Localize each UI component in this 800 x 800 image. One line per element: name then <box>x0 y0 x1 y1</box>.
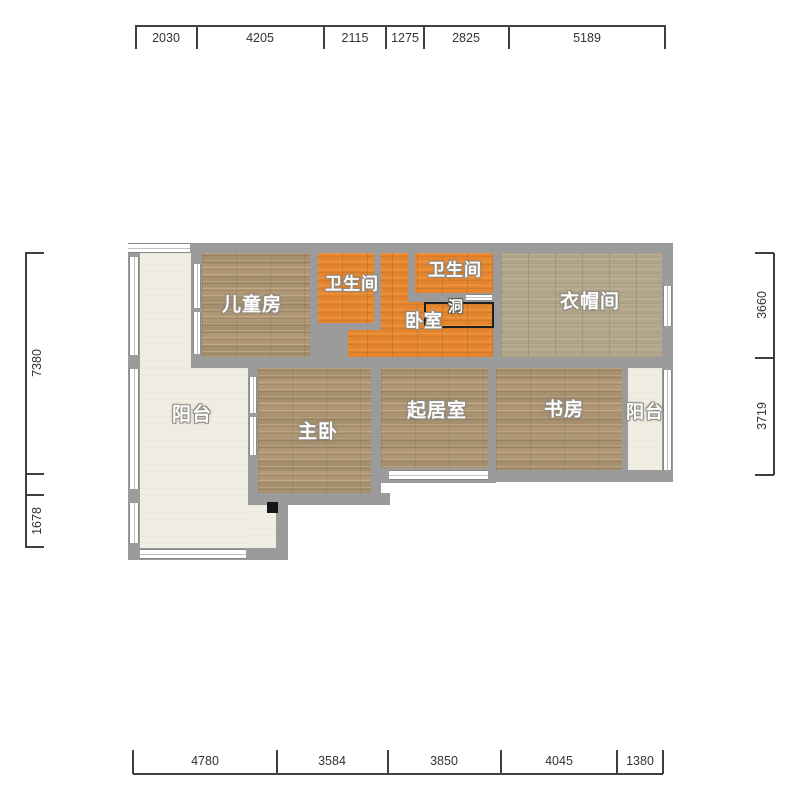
dim-left-1: 7380 <box>30 349 44 377</box>
dim-right-2: 3719 <box>755 402 769 430</box>
dim-top-4: 1275 <box>391 31 419 45</box>
window-balcony-left-upper <box>129 257 139 355</box>
room-label-study: 书房 <box>544 401 584 420</box>
window-master-left-a <box>249 377 257 413</box>
dim-bottom-1: 4780 <box>191 754 219 768</box>
window-living-bottom <box>389 470 488 480</box>
window-balcony-top <box>128 243 190 253</box>
dim-top-5: 2825 <box>452 31 480 45</box>
window-balcony-left-mid <box>129 369 139 489</box>
window-cloakroom-right <box>663 286 672 326</box>
window-children-room-a <box>193 264 201 308</box>
window-master-left-b <box>249 417 257 455</box>
dim-right-1: 3660 <box>755 291 769 319</box>
room-label-bathroom-2: 卫生间 <box>428 262 482 279</box>
window-balcony-right <box>663 370 672 470</box>
dim-bottom-2: 3584 <box>318 754 346 768</box>
room-label-bathroom-1: 卫生间 <box>325 276 379 293</box>
room-label-children-room: 儿童房 <box>222 296 282 315</box>
room-balcony-left-lower <box>140 368 248 548</box>
wall-bathroom1-bottom <box>310 323 381 330</box>
wall-study-balcony <box>622 368 628 482</box>
window-balcony-bottom <box>140 549 246 559</box>
room-label-hole: 洞 <box>448 300 464 315</box>
wall-band-divider <box>191 357 673 368</box>
dim-bottom-4: 4045 <box>545 754 573 768</box>
window-balcony-left-lower <box>129 503 139 543</box>
dim-top-1: 2030 <box>152 31 180 45</box>
floor-plan-page: { "title": "apartment-floor-plan", "room… <box>0 0 800 800</box>
wall-bedroom-cloakroom <box>493 253 501 357</box>
wall-top-outer <box>190 243 673 253</box>
dim-top-6: 5189 <box>573 31 601 45</box>
column-marker <box>267 502 278 513</box>
room-label-living-room: 起居室 <box>407 402 467 421</box>
room-label-balcony-left: 阳台 <box>172 406 212 425</box>
wall-study-bottom <box>496 470 673 482</box>
room-balcony-left-upper <box>140 253 191 368</box>
dim-bottom-3: 3850 <box>430 754 458 768</box>
dim-top-2: 4205 <box>246 31 274 45</box>
dim-top-3: 2115 <box>342 31 369 45</box>
dim-left-2: 1678 <box>30 507 44 535</box>
room-label-master-bedroom: 主卧 <box>298 423 338 442</box>
wall-living-study <box>488 368 496 482</box>
window-bathroom2-opening <box>466 294 492 301</box>
window-children-room-b <box>193 312 201 354</box>
room-label-cloakroom: 衣帽间 <box>560 293 620 312</box>
dim-bottom-5: 1380 <box>626 754 654 768</box>
room-label-balcony-right: 阳台 <box>626 403 664 421</box>
room-label-bedroom: 卧室 <box>405 312 443 330</box>
